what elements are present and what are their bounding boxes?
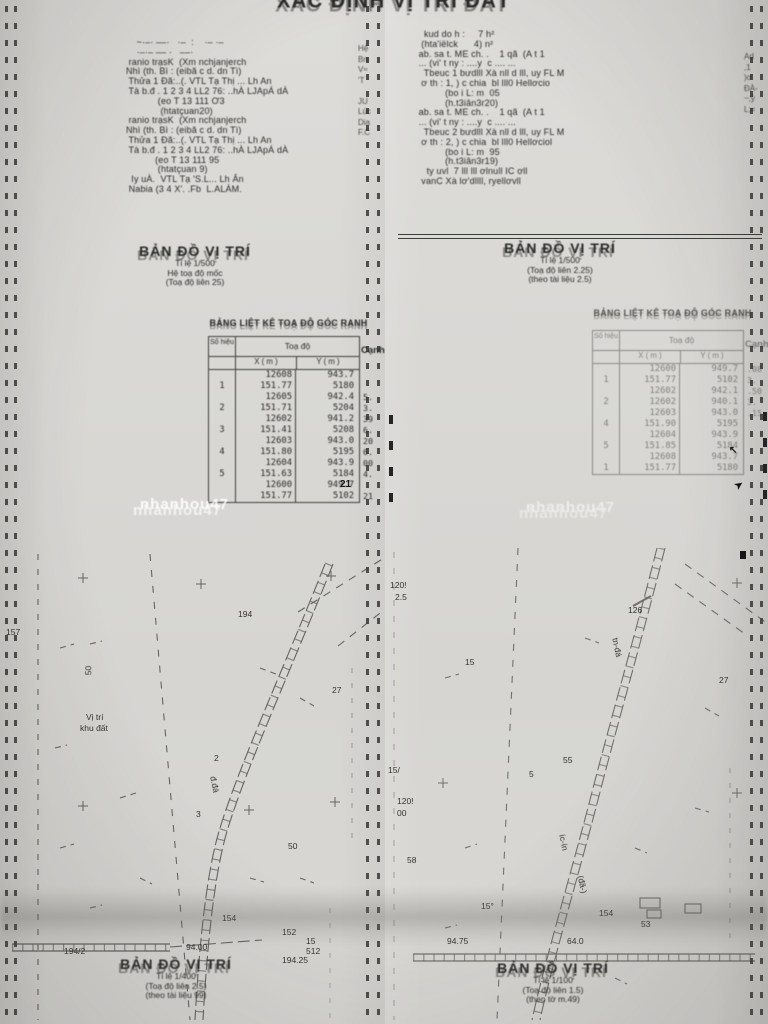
- right-bottom-title: BẢN ĐỒ VỊ TRÍ: [468, 960, 638, 976]
- scanned-land-document: XÁC ĐỊNH VỊ TRÍ ĐẤT ~·–· ––· ·– : ·– ·– …: [0, 0, 768, 1024]
- left-bottom-header: BẢN ĐỒ VỊ TRÍ Tỉ lệ 1/400 (Toạ độ liên 2…: [96, 956, 256, 1001]
- map-label: ➤: [733, 479, 745, 491]
- right-bottom-header: BẢN ĐỒ VỊ TRÍ Tỉ lệ 1/100 (Toạ độ liên 1…: [468, 960, 638, 1005]
- right-bottom-note2: (theo tờ m.49): [468, 995, 638, 1005]
- left-bottom-title: BẢN ĐỒ VỊ TRÍ: [96, 956, 256, 972]
- left-bottom-note2: (theo tài liệu 99): [96, 991, 256, 1001]
- right-stray-marks: ↖➤: [0, 0, 768, 1024]
- map-label: ↖: [729, 446, 737, 455]
